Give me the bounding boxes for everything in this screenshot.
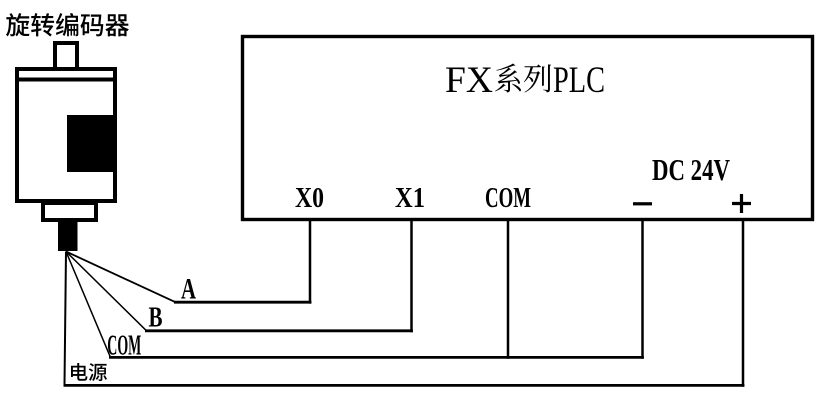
svg-text:X1: X1 xyxy=(395,182,425,214)
svg-text:COM: COM xyxy=(107,330,141,362)
svg-text:COM: COM xyxy=(485,182,531,214)
svg-text:PLC: PLC xyxy=(553,60,605,101)
svg-text:X0: X0 xyxy=(295,182,324,214)
svg-text:FX: FX xyxy=(445,60,493,101)
svg-text:DC 24V: DC 24V xyxy=(652,152,730,187)
svg-text:A: A xyxy=(181,273,196,306)
svg-text:B: B xyxy=(149,302,163,334)
